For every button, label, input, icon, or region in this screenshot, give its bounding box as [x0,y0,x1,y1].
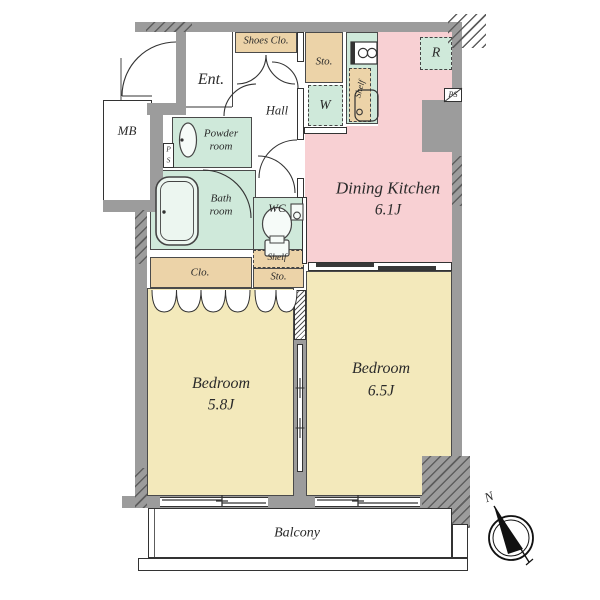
wall-hall-1 [297,32,304,62]
label-bedroom-small: Bedroom [192,374,250,394]
label-powder-room: Powder room [194,128,248,155]
label-dining-kitchen-size: 6.1J [375,202,401,221]
wall-mb-right [150,103,163,212]
label-bedroom-small-size: 5.8J [208,397,234,416]
label-ps-s: S [167,155,171,164]
hatch-left-wall [135,210,147,264]
wall-entry-left [176,32,186,110]
compass-icon [489,506,533,565]
sliding-door-panel-1 [316,263,374,267]
window-bedroom-large [315,497,420,507]
wall-hall-3 [297,178,304,198]
wall-hall-2 [297,88,304,140]
wall-mb-top [147,103,186,115]
sliding-door-panel-2 [378,266,436,270]
floor-plan: Ent. Shoes Clo. Sto. W R Shelf Hall MB P… [0,0,600,600]
label-balcony: Balcony [274,524,320,541]
balcony-step [452,524,468,558]
window-bedroom-small [160,497,268,507]
hatch-right-wall [452,156,462,206]
label-mb: MB [118,123,137,139]
label-bath-room: Bath room [199,193,243,220]
label-shelf-wc: Shelf [268,253,287,265]
balcony-ledge [138,558,468,571]
label-fridge: R [432,44,441,61]
label-clo: Clo. [191,266,210,279]
partition-sliding-track [297,344,303,472]
hatch-top-wall [146,22,192,32]
accordion-partition [294,290,306,340]
label-ps-right: PS [449,90,458,100]
label-sto-upper: Sto. [316,55,333,68]
hatch-left-wall-bottom [135,468,147,508]
meter-box [103,100,152,202]
label-washer: W [319,97,330,113]
hatch-top-right-corner [448,14,486,48]
label-shoes-clo: Shoes Clo. [244,36,289,49]
label-wc: WC [268,202,285,216]
wall-dk-block [422,100,452,152]
label-bedroom-large-size: 6.5J [368,383,394,402]
label-dining-kitchen: Dining Kitchen [336,179,440,200]
label-hall: Hall [266,103,288,118]
label-ps-p: P [166,144,171,153]
label-ent: Ent. [198,70,224,90]
label-sto-lower: Sto. [270,272,286,285]
label-north: N [482,488,496,506]
wall-below-washer [304,127,347,134]
wall-wc-right [302,197,307,264]
wall-mb-bottom [103,200,163,212]
label-bedroom-large: Bedroom [352,359,410,379]
